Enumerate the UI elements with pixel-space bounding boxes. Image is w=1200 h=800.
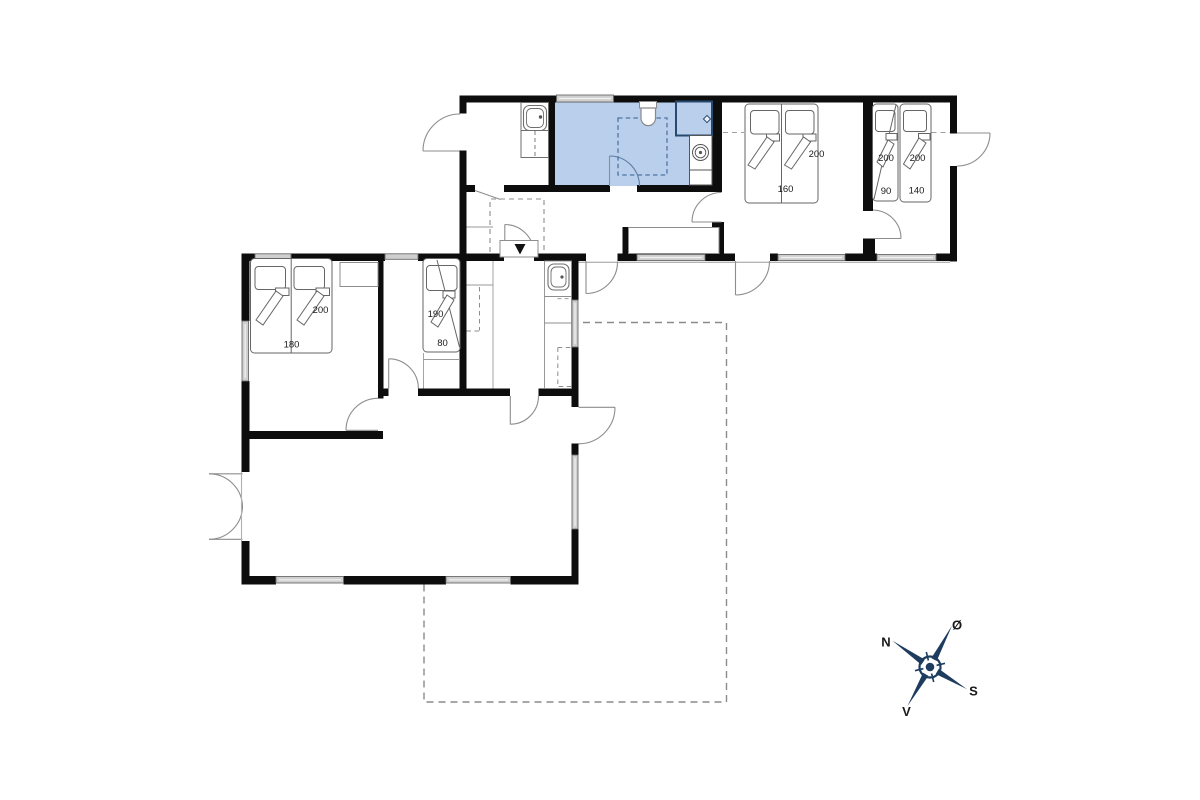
svg-text:S: S: [969, 684, 978, 699]
svg-text:190: 190: [428, 309, 444, 320]
svg-text:V: V: [902, 704, 911, 719]
svg-text:160: 160: [778, 184, 794, 195]
svg-text:200: 200: [910, 153, 926, 164]
svg-text:80: 80: [437, 338, 448, 349]
svg-text:90: 90: [881, 186, 892, 197]
svg-text:200: 200: [313, 305, 329, 316]
svg-text:140: 140: [909, 186, 925, 197]
svg-text:Ø: Ø: [952, 618, 962, 633]
svg-text:180: 180: [284, 340, 300, 351]
svg-text:200: 200: [878, 153, 894, 164]
svg-text:N: N: [881, 635, 890, 650]
svg-text:200: 200: [809, 149, 825, 160]
